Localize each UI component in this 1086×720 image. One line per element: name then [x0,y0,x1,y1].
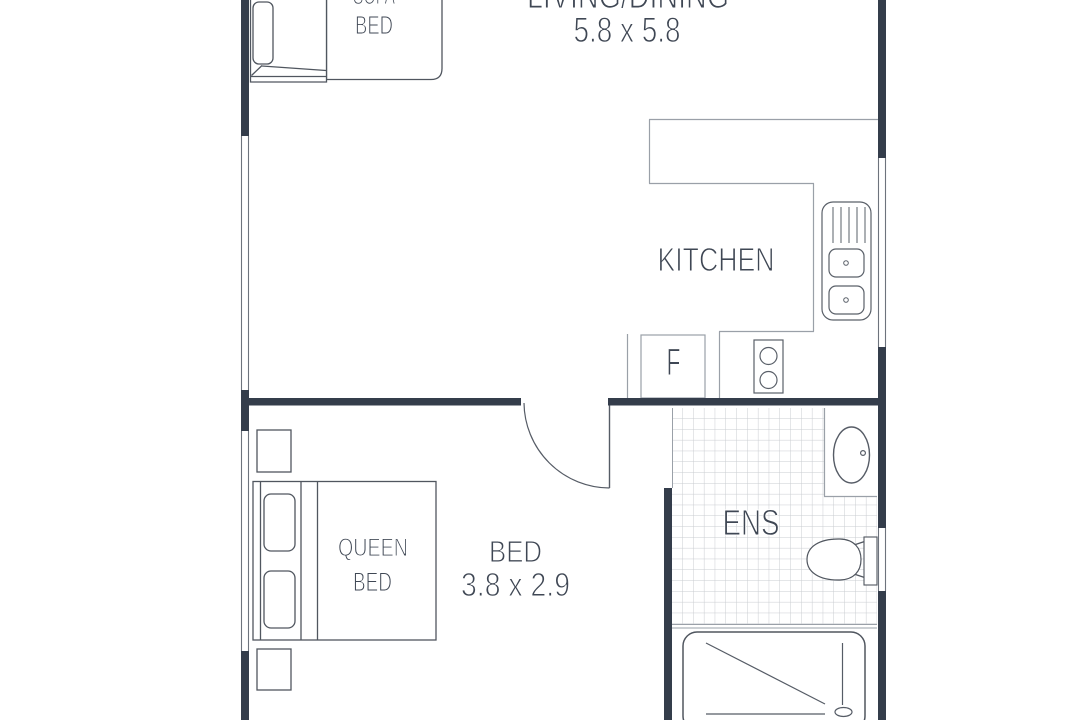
svg-text:5.8 x 5.8: 5.8 x 5.8 [574,11,681,50]
svg-text:3.8 x 2.9: 3.8 x 2.9 [461,566,570,603]
svg-text:SOFA: SOFA [353,0,395,10]
svg-text:BED: BED [489,534,542,569]
svg-text:KITCHEN: KITCHEN [658,241,775,278]
svg-text:BED: BED [353,567,392,597]
svg-text:F: F [667,342,681,384]
svg-text:BED: BED [355,10,393,40]
svg-text:QUEEN: QUEEN [338,534,408,562]
svg-text:ENS: ENS [723,502,780,543]
